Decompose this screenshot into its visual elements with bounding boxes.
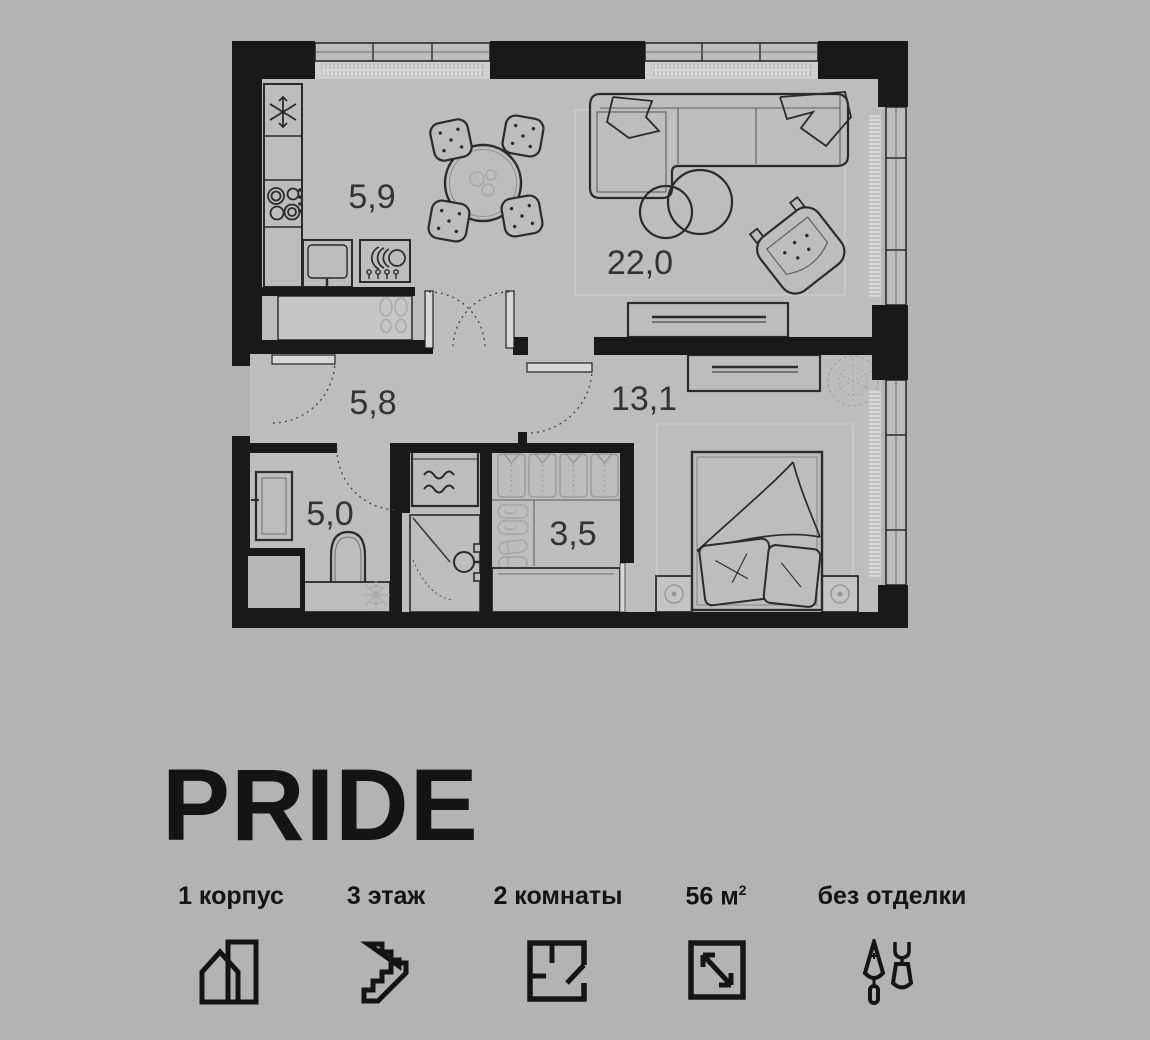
flower-decal [362, 581, 390, 609]
tv-console-living [628, 303, 788, 337]
bed [692, 452, 822, 610]
bath-cabinet [251, 472, 292, 540]
floorplan-icon [526, 939, 588, 1008]
nightstand-left [656, 576, 692, 612]
kitchen-area-label: 5,9 [348, 178, 395, 216]
hall-closet [278, 296, 412, 340]
detail-building-label: 1 корпус [178, 882, 284, 911]
shower [410, 515, 484, 612]
console-bedroom [688, 355, 820, 391]
bathroom-area-label: 5,0 [306, 495, 353, 533]
floor-plan: 5,9 22,0 5,8 13,1 5,0 3,5 [0, 0, 1150, 700]
detail-rooms-label: 2 комнаты [493, 882, 622, 911]
window-kitchen [315, 43, 490, 79]
pillow-right [763, 544, 821, 607]
wardrobe-drawer [492, 568, 620, 612]
detail-floor-label: 3 этаж [347, 882, 425, 911]
laundry-shower [410, 450, 484, 612]
living-area-label: 22,0 [607, 244, 673, 282]
washing-machine [412, 450, 478, 506]
wardrobe-area-label: 3,5 [549, 515, 596, 553]
tools-icon [860, 939, 924, 1012]
detail-area-label: 56 м2 [685, 882, 746, 911]
hallway-area-label: 5,8 [349, 384, 396, 422]
bedroom-area-label: 13,1 [611, 380, 677, 418]
area-sup: 2 [739, 882, 747, 898]
stairs-icon [355, 939, 419, 1010]
building-icon [198, 939, 262, 1010]
apartment-card: 5,9 22,0 5,8 13,1 5,0 3,5 PRIDE 1 корпус… [0, 0, 1150, 1040]
vanity [292, 581, 390, 612]
detail-finishing-label: без отделки [818, 882, 967, 911]
window-living-top [645, 43, 818, 79]
area-icon [687, 939, 749, 1008]
nightstand-right [822, 576, 858, 612]
brand-logo: PRIDE [162, 752, 479, 859]
window-living-right [869, 107, 906, 305]
window-bedroom-right [869, 380, 906, 585]
